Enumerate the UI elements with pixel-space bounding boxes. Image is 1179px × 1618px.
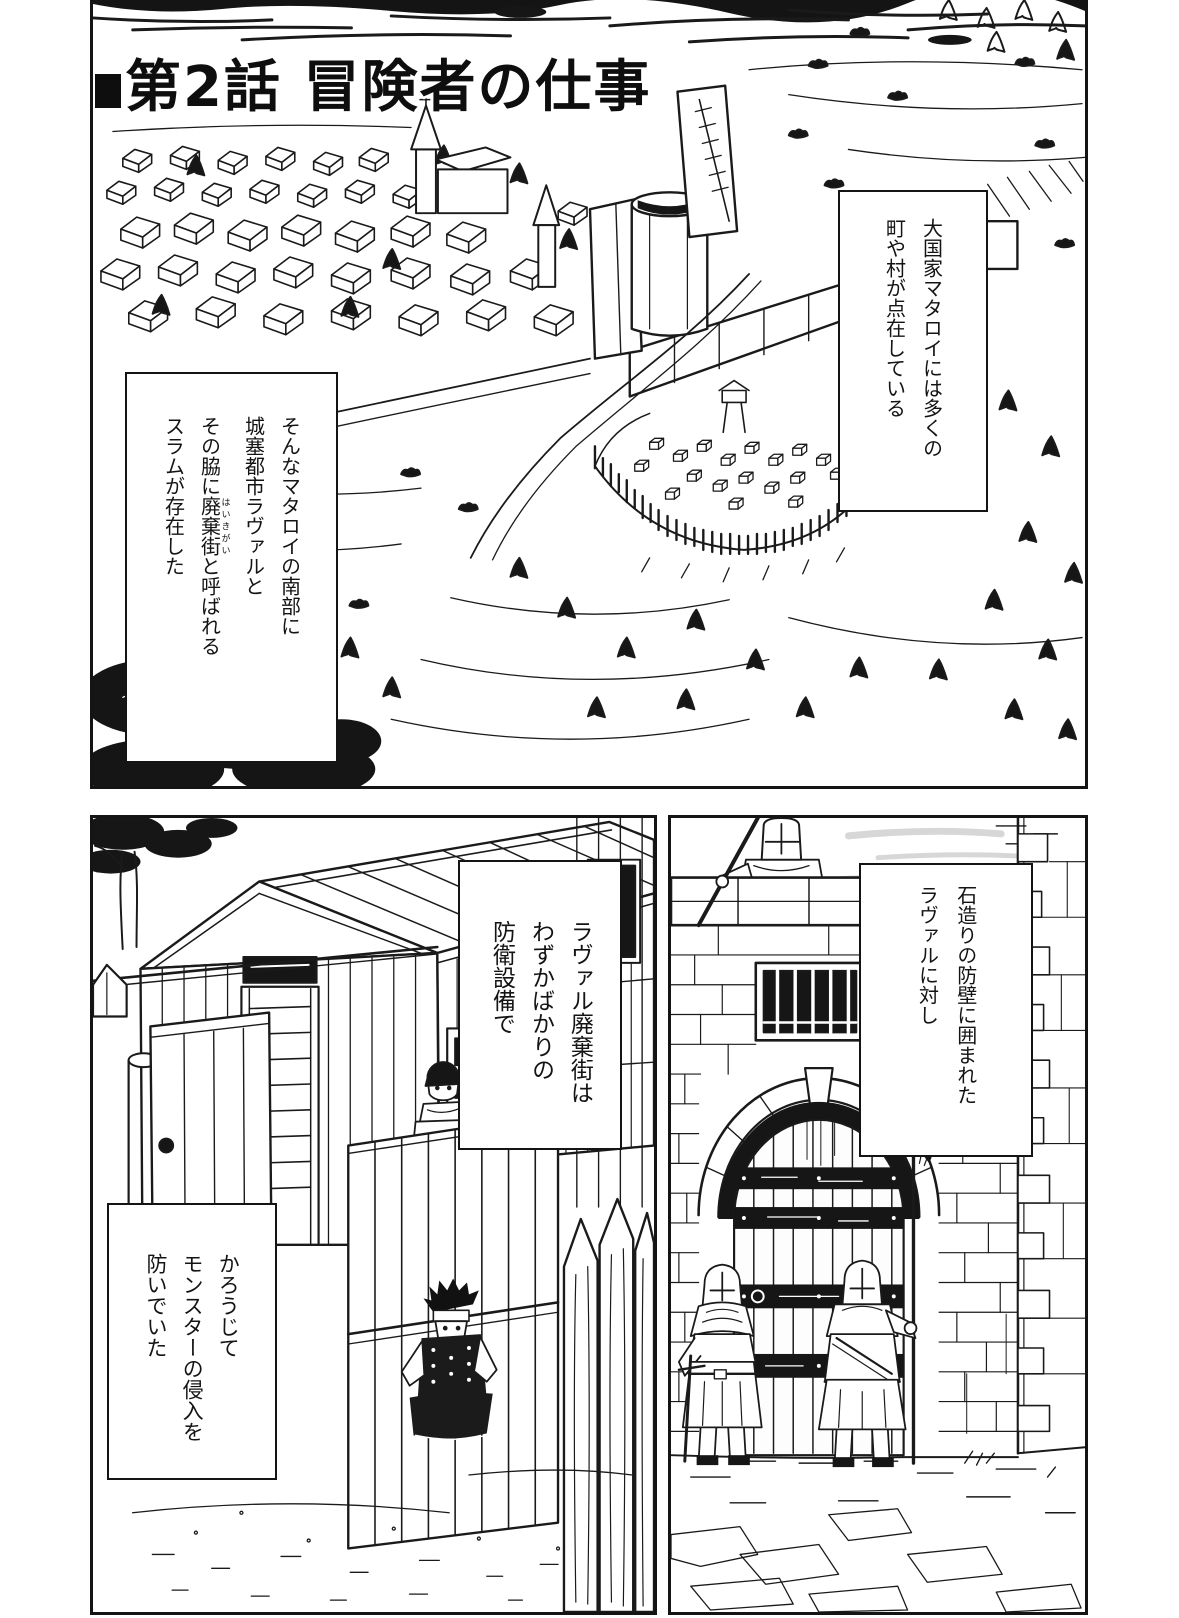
narration-box-stone-wall: 石造りの防壁に囲まれた ラヴァルに対し: [859, 863, 1033, 1157]
manga-page: 第2話 冒険者の仕事 大国家マタロイには多くの 町や村が点在している そんなマタ…: [0, 0, 1179, 1618]
narration-box-country: 大国家マタロイには多くの 町や村が点在している: [838, 190, 988, 512]
caption-line: 大国家マタロイには多くの: [920, 218, 944, 458]
title-bullet-icon: [95, 74, 121, 108]
caption-line: 防いでいた: [144, 1253, 168, 1358]
chapter-title: 第2話 冒険者の仕事: [95, 42, 651, 123]
caption-line: 防衛設備で: [488, 920, 515, 1035]
caption-line: スラムが存在した: [162, 416, 186, 576]
caption-line: 石造りの防壁に囲まれた: [954, 885, 977, 1105]
caption-line: かろうじて: [216, 1253, 240, 1358]
caption-line: モンスターの侵入を: [180, 1253, 204, 1442]
caption-line: 町や村が点在している: [883, 218, 907, 418]
furigana: はいきがい: [220, 496, 230, 556]
narration-box-monsters: かろうじて モンスターの侵入を 防いでいた: [107, 1203, 277, 1480]
caption-line: わずかばかりの: [527, 920, 554, 1081]
narration-box-slum-intro: そんなマタロイの南部に 城塞都市ラヴァルと その脇に廃棄街はいきがいと呼ばれる …: [125, 372, 338, 763]
caption-line: そんなマタロイの南部に: [278, 416, 302, 636]
chapter-title-text: 第2話 冒険者の仕事: [125, 55, 651, 120]
caption-line: 城塞都市ラヴァルと: [242, 416, 266, 596]
caption-line: ラヴァル廃棄街は: [565, 920, 592, 1104]
narration-box-defense: ラヴァル廃棄街は わずかばかりの 防衛設備で: [458, 860, 622, 1150]
caption-line: その脇に廃棄街はいきがいと呼ばれる: [198, 416, 230, 656]
caption-line: ラヴァルに対し: [915, 885, 938, 1025]
